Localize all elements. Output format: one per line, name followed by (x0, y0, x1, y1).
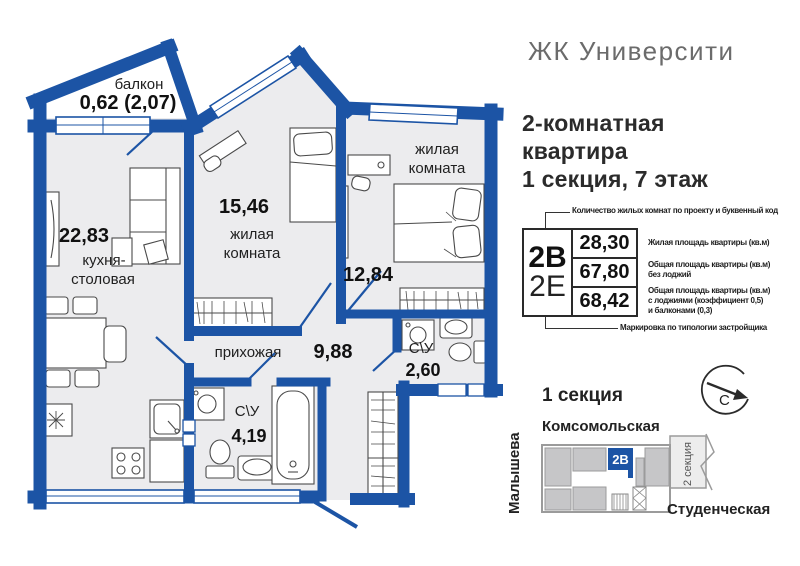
legend-bottom-note: Маркировка по типологии застройщика (620, 323, 767, 332)
bedroom1-label-1: жилая (230, 226, 274, 243)
bath1-area: 4,19 (231, 426, 266, 447)
total-balcony-note-2: с лоджиями (коэффициент 0,5) (648, 296, 763, 305)
bath1-label: С\У (235, 403, 260, 420)
kitchen-label-1: кухня- (82, 252, 125, 269)
bath2-label: С\У (409, 340, 434, 357)
kitchen-area: 22,83 (59, 225, 109, 248)
apartment-type-line: 2-комнатная (522, 110, 665, 137)
legend-values-column: 28,30 67,80 68,42 (573, 230, 636, 315)
bedroom2-label-1: жилая (415, 141, 459, 158)
living-area-value: 28,30 (573, 230, 636, 259)
apartment-plan-page: балкон 0,62 (2,07) 22,83 кухня- столовая… (0, 0, 800, 566)
kitchen-label-2: столовая (71, 271, 135, 288)
total-area-value: 67,80 (573, 259, 636, 288)
hall-label: прихожая (215, 344, 282, 361)
street-malysheva: Малышева (506, 438, 523, 514)
unit-code-alt: 2Е (529, 273, 566, 302)
minimap-unit-label: 2В (608, 452, 633, 467)
total-balcony-note-1: Общая площадь квартиры (кв.м) (648, 286, 770, 295)
bath2-area: 2,60 (405, 360, 440, 381)
section-floor-line: 1 секция, 7 этаж (522, 166, 708, 193)
balcony-label: балкон (115, 76, 164, 93)
compass-north-letter: С (719, 392, 730, 409)
balcony-area: 0,62 (2,07) (80, 92, 177, 115)
legend-table: 2В 2Е 28,30 67,80 68,42 (522, 228, 638, 317)
hall-area: 9,88 (314, 341, 353, 364)
total-balcony-note-3: и балконами (0,3) (648, 306, 712, 315)
page-title: ЖК Университи (528, 36, 735, 67)
total-area-note-2: без лоджий (648, 270, 691, 279)
living-area-note: Жилая площадь квартиры (кв.м) (648, 238, 769, 247)
legend-bottom-callout-line (545, 317, 618, 329)
legend-top-callout-line (545, 212, 570, 229)
apartment-type-line: квартира (522, 138, 628, 165)
street-studencheskaya: Студенческая (667, 501, 770, 518)
total-area-note-1: Общая площадь квартиры (кв.м) (648, 260, 770, 269)
street-komsomolskaya: Комсомольская (542, 418, 660, 435)
unit-code-main: 2В (528, 244, 566, 273)
bedroom1-area: 15,46 (219, 196, 269, 219)
bedroom2-area: 12,84 (343, 264, 393, 287)
minimap-section2-label: 2 секция (682, 438, 694, 486)
minimap-section-title: 1 секция (542, 385, 623, 407)
total-area-with-balcony-value: 68,42 (573, 288, 636, 315)
bedroom1-label-2: комната (224, 245, 281, 262)
legend-top-note: Количество жилых комнат по проекту и бук… (572, 206, 778, 215)
bedroom2-label-2: комната (409, 160, 466, 177)
legend-codes-cell: 2В 2Е (524, 230, 573, 315)
